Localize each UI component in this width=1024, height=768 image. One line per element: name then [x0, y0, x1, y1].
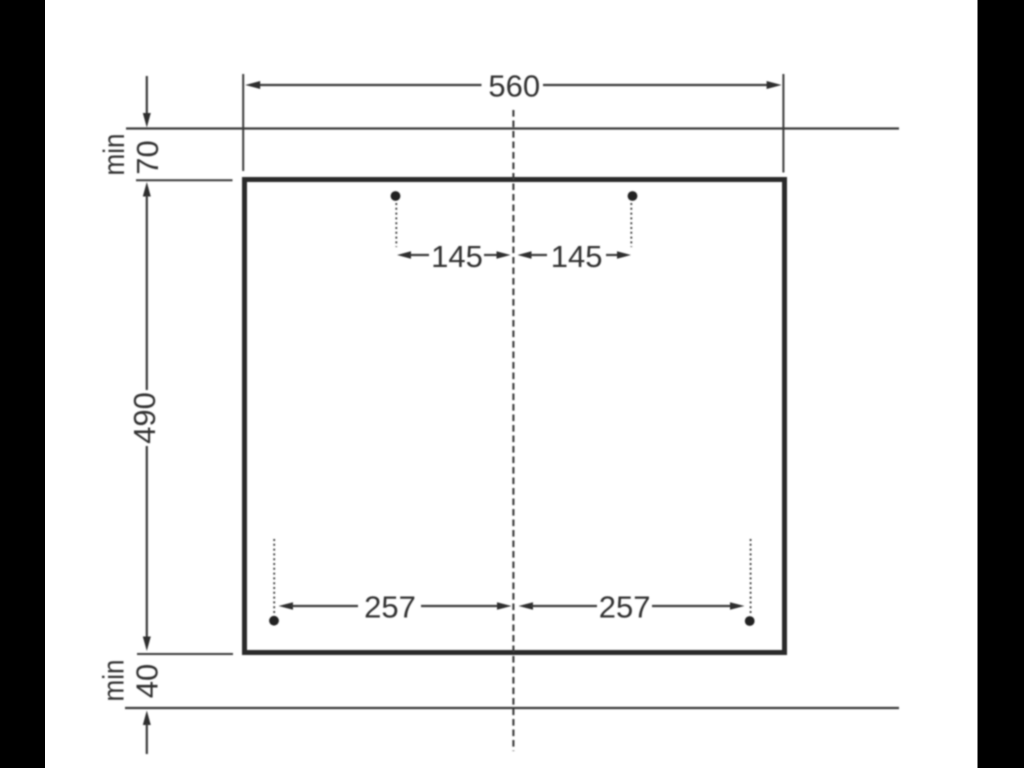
svg-text:min: min: [98, 134, 131, 176]
svg-text:70: 70: [130, 140, 165, 174]
svg-text:257: 257: [599, 590, 651, 625]
svg-text:257: 257: [364, 590, 416, 625]
svg-text:145: 145: [431, 239, 483, 274]
svg-text:40: 40: [130, 664, 165, 698]
svg-text:145: 145: [551, 239, 603, 274]
svg-text:560: 560: [488, 69, 540, 104]
svg-text:490: 490: [127, 392, 162, 444]
svg-text:min: min: [98, 660, 131, 702]
